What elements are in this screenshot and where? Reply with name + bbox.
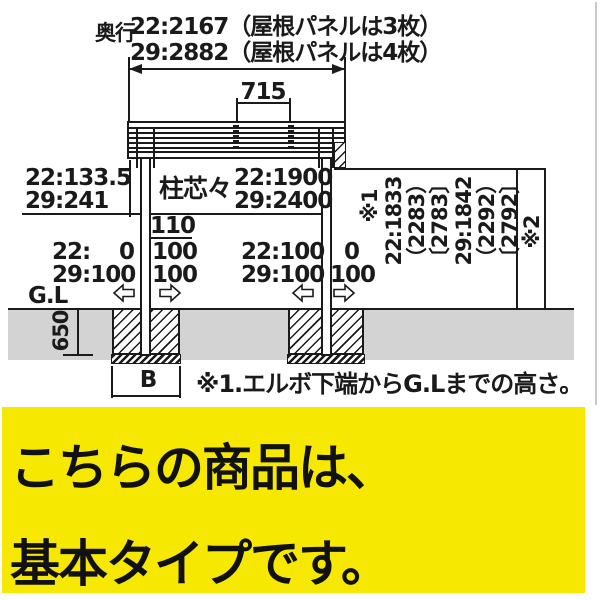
post-width-value: 110 (150, 214, 195, 238)
footing-depth-dim-line (77, 308, 79, 356)
height-29-block: 29:1842 （2292） 〔2792〕 (452, 169, 522, 273)
ref2-text: ※2 (521, 215, 543, 248)
adj-right-outer-r2: 100 (330, 263, 375, 287)
pitch-label: 柱芯々 (159, 176, 231, 202)
eave-offset-value-29: 29:241 (25, 189, 108, 213)
gl-label: G.L (28, 284, 67, 308)
elbow-bracket-hatch (334, 142, 346, 168)
roof-panel-joint (233, 130, 239, 133)
depth-dim-line (129, 68, 345, 70)
height-22-bracket: 〔2783〕 (429, 174, 452, 268)
adj-left-outer-label: 22: (52, 240, 90, 264)
roof-panel-joint (288, 130, 294, 133)
footing-depth-value: 650 (49, 309, 73, 353)
ref2-label: ※2 (520, 212, 544, 252)
height-29-bracket: 〔2792〕 (499, 174, 522, 268)
roof-panel-joint (288, 125, 294, 128)
adj-left-inner-r1: 100 (152, 240, 197, 264)
b-dim-value: B (137, 368, 159, 392)
roof-panel-joint (288, 146, 294, 149)
roof-panel-joint (288, 135, 294, 138)
banner-line2: 基本タイプです。 (10, 524, 389, 596)
roof-panel-joint (233, 140, 239, 143)
b-dim-tick-left (111, 366, 113, 398)
pitch-value-29: 29:2400 (234, 189, 332, 213)
depth-value-22: 22:2167（屋根パネルは3枚） (130, 15, 441, 39)
adj-right-outer-r1: 0 (344, 240, 359, 264)
carport-dimension-diagram: 奥行 22:2167（屋根パネルは3枚） 29:2882（屋根パネルは4枚） 7… (0, 0, 600, 600)
pitch-value-22: 22:1900 (234, 166, 332, 190)
post-left (140, 146, 151, 356)
roof-panel-joint (288, 140, 294, 143)
depth-value-29: 29:2882（屋根パネルは4枚） (130, 41, 441, 65)
roofspan-value: 715 (236, 80, 290, 104)
adj-right-inner-29: 29:100 (241, 263, 324, 287)
height-22-block: 22:1833 （2283） 〔2783〕 (382, 169, 452, 273)
height-dim-line-outer (544, 168, 546, 309)
eave-offset-value-22: 22:133.5 (25, 166, 131, 190)
b-dim-tick-right (179, 366, 181, 398)
post-bracket-right (318, 128, 334, 168)
height-29-paren: （2292） (476, 174, 499, 268)
adj-left-outer-value: 0 (119, 240, 134, 264)
roof-slat-line (129, 151, 344, 153)
footing-depth-text: 650 (50, 311, 72, 352)
adj-right-inner-22: 22:100 (241, 240, 324, 264)
post-bracket-left (136, 128, 155, 168)
roof-panel-joint (233, 135, 239, 138)
depth-label: 奥行 (95, 22, 135, 44)
height-22-main: 22:1833 (383, 176, 406, 265)
promo-banner: こちらの商品は、 基本タイプです。 (2, 407, 585, 593)
roof-panel-joint (233, 125, 239, 128)
height-22-paren: （2283） (406, 174, 429, 268)
photo-edge-line (595, 2, 597, 405)
height-29-main: 29:1842 (453, 176, 476, 265)
b-dim-line (111, 395, 181, 397)
ref1-label: ※1 (358, 186, 382, 226)
banner-line1: こちらの商品は、 (10, 428, 394, 500)
footing-depth-tick-bottom (63, 354, 93, 356)
adj-left-inner-r2: 100 (152, 263, 197, 287)
roof-panel-joint (233, 146, 239, 149)
note-text: ※1.エルボ下端からG.Lまでの高さ。 (196, 372, 582, 397)
ref1-text: ※1 (359, 189, 381, 222)
